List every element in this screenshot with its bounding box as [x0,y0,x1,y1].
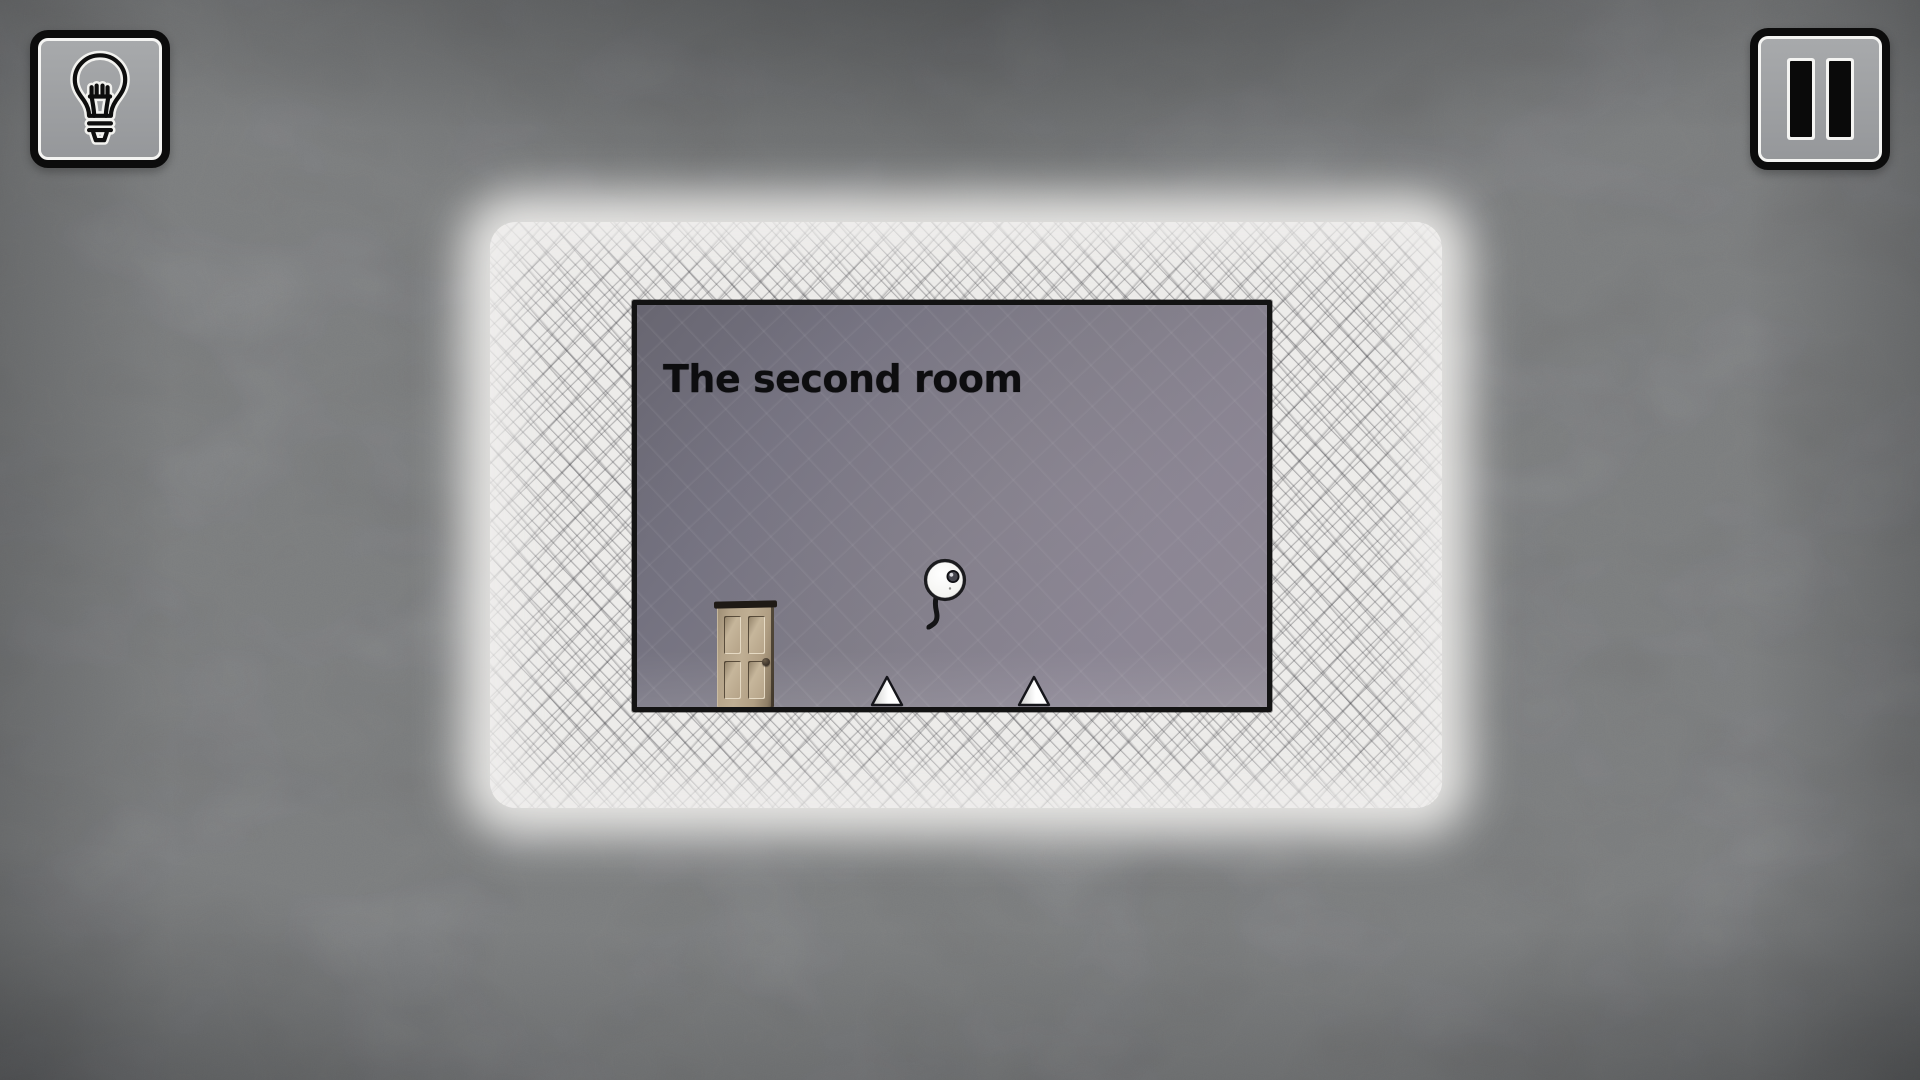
pause-button[interactable] [1750,28,1890,170]
player-mouth-dot [949,587,951,589]
spike-hazard [1017,675,1051,707]
game-screen: The second room [0,0,1920,1080]
spike-hazard [870,675,904,707]
door-knob-icon [762,658,770,666]
exit-door[interactable] [717,607,774,707]
room-title: The second room [663,357,1023,401]
lightbulb-icon [58,48,142,150]
door-panel [748,616,765,654]
door-panel [748,661,765,699]
player-character [907,545,977,637]
game-room[interactable]: The second room [632,300,1272,712]
door-lintel [714,600,777,608]
door-panel [724,616,741,654]
pause-icon [1790,61,1851,137]
player-head [926,561,965,600]
player-eye-icon [947,571,958,582]
hint-button[interactable] [30,30,170,168]
door-panel [724,661,741,699]
